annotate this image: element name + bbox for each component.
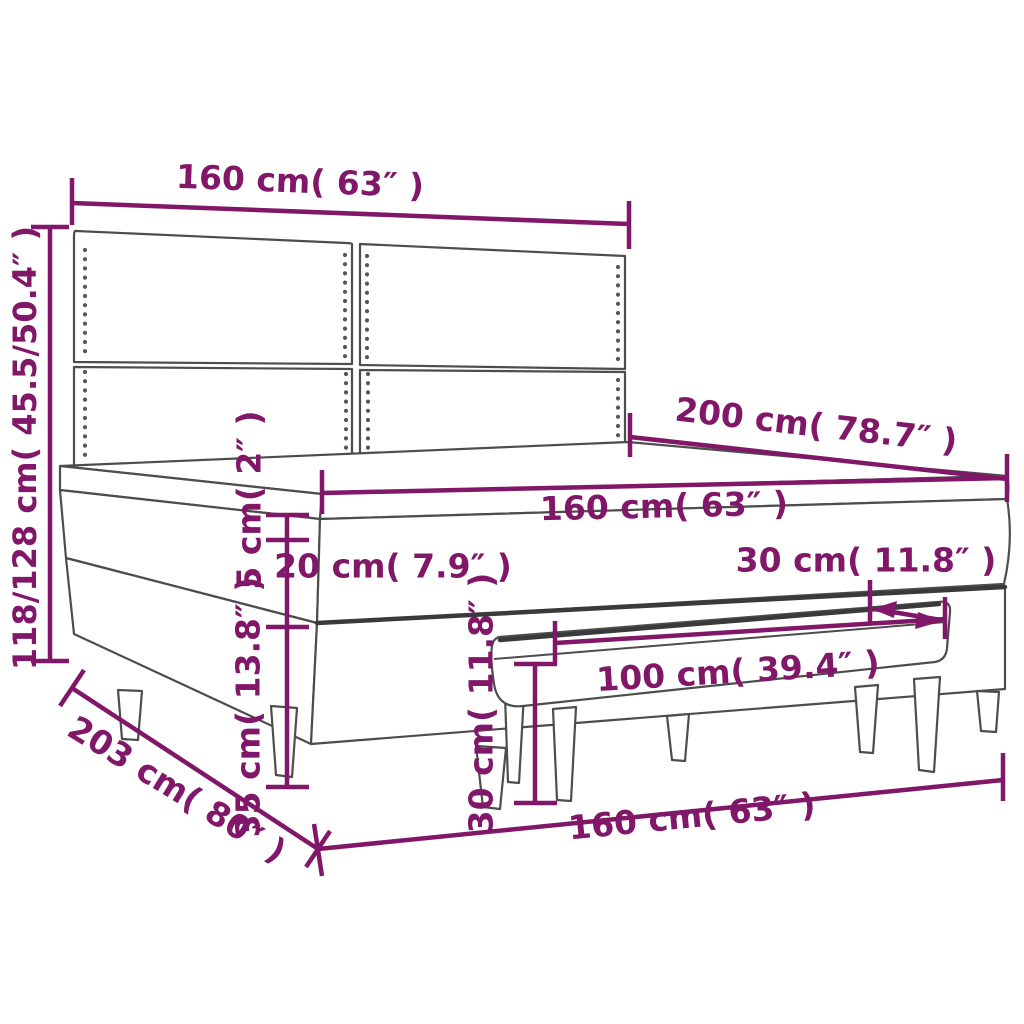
bench-leg [505,694,524,783]
bench-leg [855,685,878,753]
dimension-label: 35 cm( 13.8″ ) [229,577,268,838]
bench-leg [553,707,576,801]
dimension-label: 5 cm( 2″ ) [230,410,269,589]
bed-leg [977,691,999,732]
headboard-panel [74,231,352,364]
bench-leg [667,714,689,761]
headboard [74,231,625,474]
dimension-label: 160 cm( 63″ ) [539,484,788,529]
dimension-label: 160 cm( 63″ ) [566,784,817,847]
dimension-label: 118/128 cm( 45.5/50.4″ ) [6,226,44,670]
headboard-panel [360,244,625,369]
bench-leg [914,677,940,772]
dimension-diagram: 160 cm( 63″ ) 118/128 cm( 45.5/50.4″ ) 2… [0,0,1024,1024]
dimension-overall-height: 118/128 cm( 45.5/50.4″ ) [6,226,69,670]
diagram-canvas: 160 cm( 63″ ) 118/128 cm( 45.5/50.4″ ) 2… [0,0,1024,1024]
dimension-label: 160 cm( 63″ ) [175,157,424,205]
dimension-frame-width: 160 cm( 63″ ) [314,753,1003,876]
dimension-label: 30 cm( 11.8″ ) [736,541,997,580]
dimension-label: 30 cm( 11.8″ ) [462,573,501,834]
bed-leg [271,706,297,777]
